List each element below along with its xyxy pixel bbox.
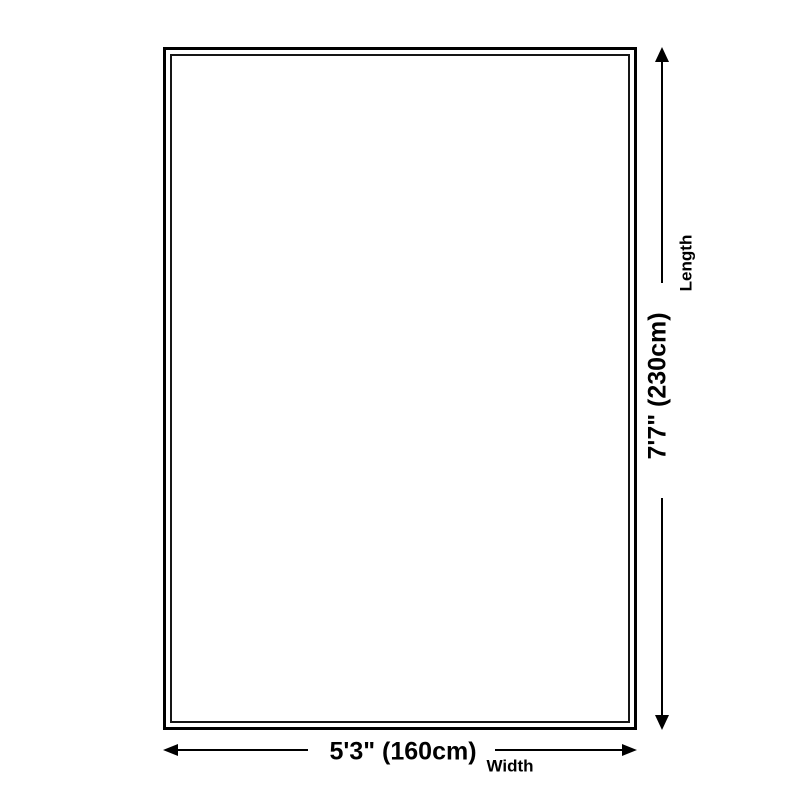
rug-outline <box>163 47 637 730</box>
length-dimension-line-top <box>661 59 663 283</box>
width-axis-label: Width <box>486 758 533 775</box>
width-dimension-line-right <box>495 749 623 751</box>
length-value-label: 7'7" (230cm) <box>646 312 671 459</box>
rug-dimension-diagram: Length 7'7" (230cm) 5'3" (160cm) Width <box>0 0 800 800</box>
width-value-label: 5'3" (160cm) <box>329 740 476 765</box>
rug-inner-outline <box>170 54 630 723</box>
length-axis-label: Length <box>678 235 695 292</box>
length-dimension-line-bottom <box>661 498 663 723</box>
width-dimension-line-left <box>176 749 308 751</box>
arrow-right-icon <box>622 744 637 756</box>
arrow-down-icon <box>655 715 669 730</box>
